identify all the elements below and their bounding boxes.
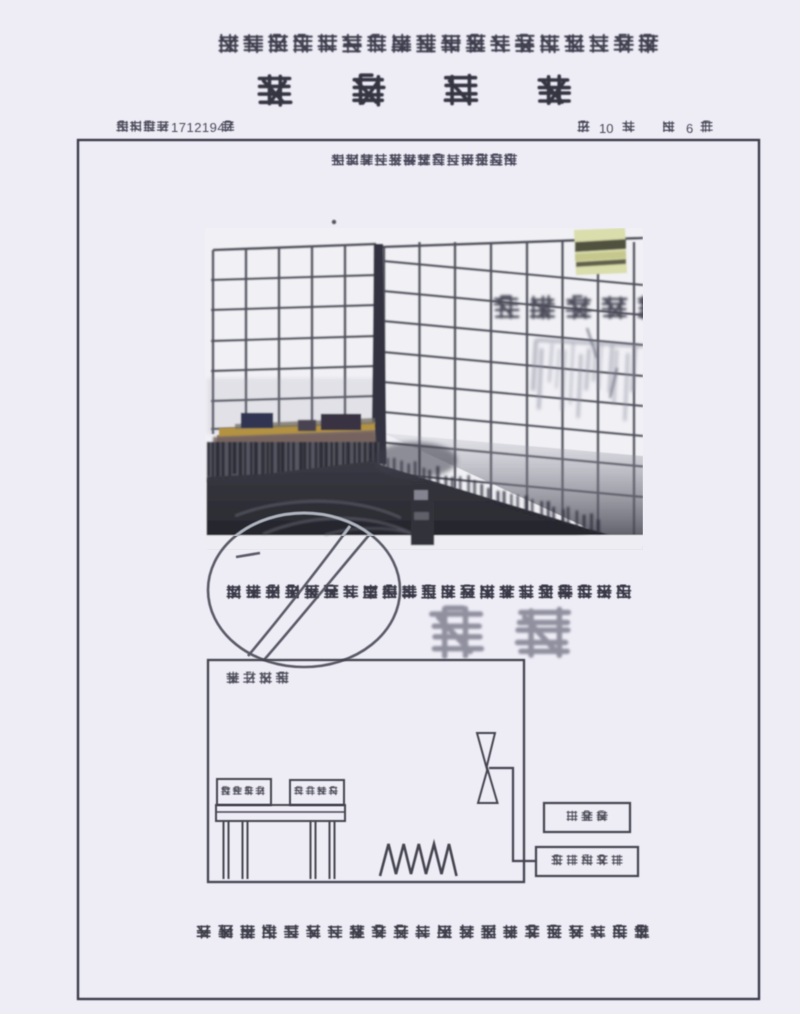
svg-text:10: 10 xyxy=(599,121,613,136)
svg-text:6: 6 xyxy=(686,121,693,136)
svg-text:1712194: 1712194 xyxy=(171,120,225,135)
